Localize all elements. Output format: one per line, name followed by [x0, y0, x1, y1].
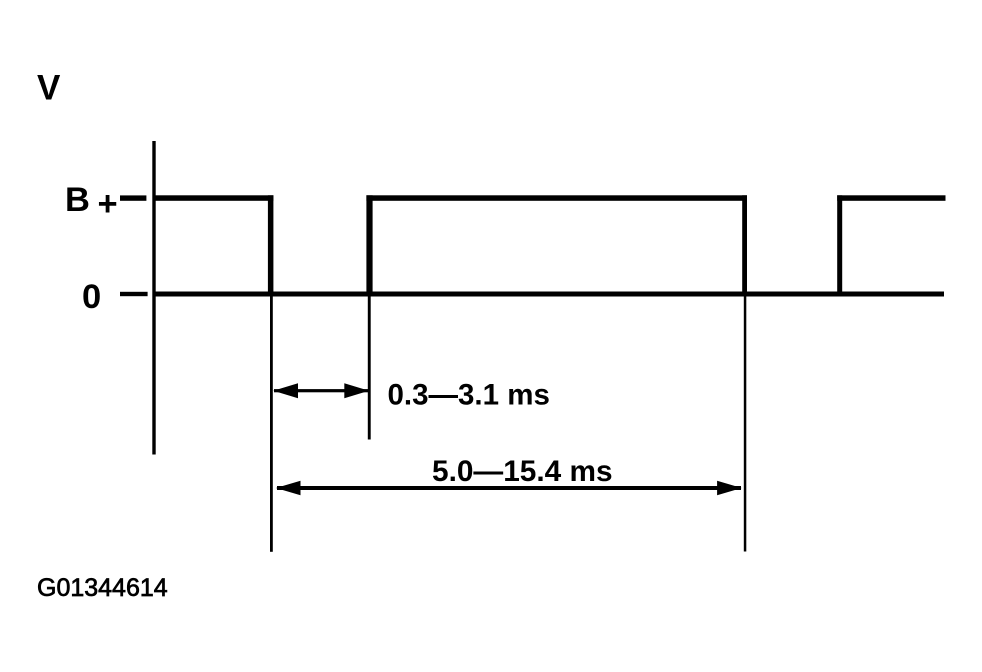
svg-text:+: + [98, 185, 118, 223]
svg-text:5.0—15.4 ms: 5.0—15.4 ms [432, 455, 613, 488]
svg-text:V: V [37, 69, 61, 108]
svg-text:0.3—3.1 ms: 0.3—3.1 ms [388, 379, 550, 412]
svg-text:G01344614: G01344614 [37, 574, 168, 602]
svg-text:0: 0 [82, 278, 101, 316]
svg-text:B: B [65, 181, 90, 219]
